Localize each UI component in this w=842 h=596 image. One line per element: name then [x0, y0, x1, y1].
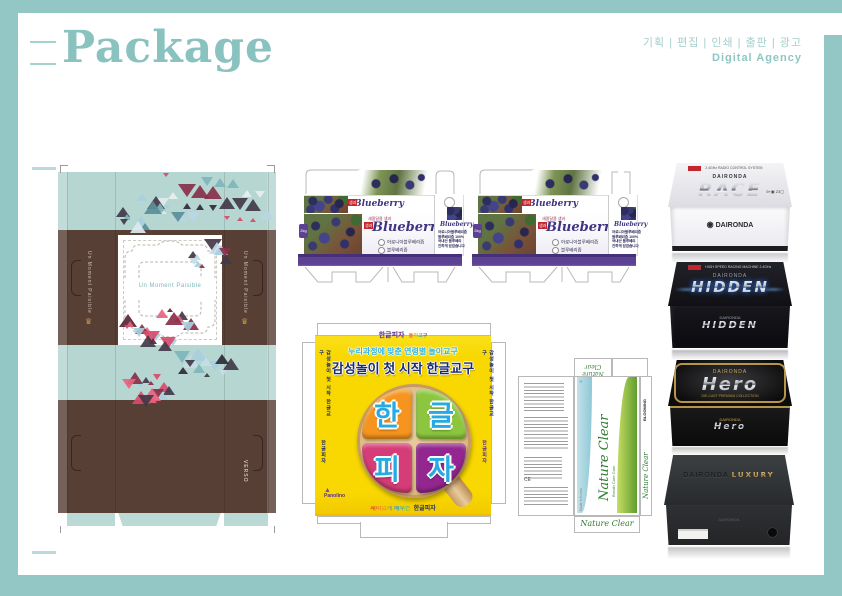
box-note: HIGH SPEED RACING MACHINE 2.4GHz	[705, 265, 784, 269]
box-title: HIDDEN	[691, 279, 769, 296]
ingredients-text-block	[524, 487, 568, 507]
option-1: 아로니아블루베리즙	[378, 239, 424, 246]
shipping-label	[678, 529, 708, 539]
bottom-strip-text: 재미있게 배우는한글피자	[300, 503, 506, 512]
triangle-decoration	[124, 325, 130, 329]
box-marks: 5+▣ 23▢	[766, 189, 784, 194]
brand-line: DAIRONDA LUXURY	[683, 471, 774, 479]
triangle-decoration	[242, 190, 252, 197]
maker-logo: ▲ Panolino	[324, 488, 345, 499]
box-front-face: DAIRONDA HIDDEN	[670, 306, 790, 348]
box-note: 2.4GHz RADIO CONTROL SYSTEM	[705, 166, 784, 170]
frame-right	[824, 35, 842, 596]
box-top-face: DAIRONDA LUXURY	[664, 455, 794, 505]
triangle-decoration	[209, 205, 217, 211]
side-text-right-2: 한글피자	[481, 440, 488, 500]
front-note: DAIRONDA	[666, 517, 792, 522]
blueberry-dieline-1: Blueberry 생과 새콤달콤 생과 생과 Blueberry 아로니아블루…	[298, 166, 462, 296]
crop-mark	[267, 526, 275, 533]
triangle-decoration	[200, 357, 212, 366]
product-box-luxury: DAIRONDA LUXURY DAIRONDA	[664, 455, 794, 560]
sofa-bottom-flap	[67, 513, 115, 526]
blueberry-photo-small	[304, 196, 348, 213]
triangle-decoration	[186, 212, 200, 222]
blueberry-dieline-2: Blueberry 생과 새콤달콤 생과 생과 Blueberry 아로니아블루…	[472, 166, 636, 296]
side-text-right: 감성놀이 첫 시작 한글교구	[481, 350, 495, 420]
fold-line	[115, 172, 116, 513]
box-reflection	[668, 547, 790, 559]
side-panel: Blueberry 아로니아블루베리즙 블루베리즙 100% 국내산 블루베리 …	[434, 195, 463, 254]
weight-badge: 2kg	[299, 224, 308, 238]
triangle-decoration	[178, 367, 188, 374]
blueberry-script-small: Blueberry	[528, 199, 578, 209]
triangle-decoration	[219, 197, 235, 209]
blueberry-photo-small	[478, 196, 522, 213]
triangle-decoration	[168, 192, 178, 199]
sofa-package-dieline: Un Moment Paisible Un Moment Paisible ♛ …	[58, 165, 276, 533]
triangle-decoration	[255, 191, 265, 198]
triangle-decoration	[219, 248, 231, 257]
product-box-hidden: HIGH SPEED RACING MACHINE 2.4GHz DAIROND…	[668, 262, 792, 360]
page-title: Package	[62, 22, 274, 73]
triangle-decoration	[138, 395, 154, 407]
option-circle	[378, 239, 385, 246]
triangle-decoration	[156, 309, 168, 318]
box-top-face: DAIRONDA Hero DIE-CAST PREMIUM COLLECTIO…	[668, 360, 792, 406]
blueberry-script-small: Blueberry	[354, 199, 404, 209]
portfolio-page: Package 기획 | 편집 | 인쇄 | 출판 | 광고 Digital A…	[0, 0, 842, 596]
ingredients-panel: CE	[518, 376, 574, 516]
handle-cutout	[71, 435, 81, 471]
front-name: HIDDEN	[670, 320, 790, 331]
crop-mark	[60, 526, 68, 533]
triangle-decoration	[178, 184, 196, 197]
top-flap-2	[612, 358, 648, 377]
triangle-decoration	[199, 264, 205, 268]
red-tag	[688, 166, 701, 171]
red-tag: 생과	[538, 222, 547, 229]
crown-icon: ♛	[241, 317, 248, 326]
sofa-side-text: Un Moment Paisible	[242, 251, 248, 315]
sofa-tagline: Un Moment Paisible	[118, 283, 222, 289]
fold-line	[67, 172, 68, 513]
agency-text: Digital Agency	[643, 52, 802, 64]
frame-bottom	[0, 575, 842, 596]
triangle-decoration	[153, 374, 161, 380]
ce-mark: CE	[524, 477, 531, 483]
triangle-decoration	[237, 217, 243, 221]
brand-text: BLOOMING	[642, 381, 647, 421]
triangle-decoration	[193, 254, 201, 260]
red-tag: 생과	[348, 199, 357, 206]
title-line-1	[30, 41, 56, 43]
box-front-face: DAIRONDA Hero	[670, 406, 790, 446]
nature-subtitle: Breath Care Gum	[611, 437, 616, 497]
top-brand: 한글피자 놀이교구	[300, 324, 506, 342]
sofa-bottom-flap	[115, 513, 224, 526]
side-berry-photo	[621, 207, 636, 220]
flap-name: Nature Clear	[575, 363, 611, 377]
nature-name-small: Nature Clear	[642, 429, 650, 499]
box-front-face: ◉ DAIRONDA	[670, 207, 790, 251]
nature-main-panel: Nature Clear Breath Care Gum Made in Kor…	[574, 376, 640, 516]
side-script: Blueberry	[614, 221, 647, 228]
triangle-decoration	[204, 373, 210, 377]
crop-mark	[60, 165, 68, 173]
triangle-decoration	[137, 194, 147, 201]
fold-line	[268, 172, 269, 513]
brand-text: DAIRONDA	[683, 472, 728, 479]
product-box-race: 2.4GHz RADIO CONTROL SYSTEM DAIRONDA RAC…	[668, 163, 792, 263]
triangle-decoration	[148, 381, 154, 385]
triangle-decoration	[219, 370, 227, 376]
triangle-decoration	[144, 201, 162, 214]
triangle-decoration	[201, 177, 213, 186]
blueberry-branch-photo	[358, 170, 430, 195]
product-box-hero: DAIRONDA Hero DIE-CAST PREMIUM COLLECTIO…	[668, 360, 792, 455]
nature-clear-dieline: Nature Clear CE Nature Clear Breath Care…	[516, 356, 652, 532]
option-circle	[552, 247, 559, 254]
red-tag	[688, 265, 701, 270]
side-panel: Blueberry 아로니아블루베리즙 블루베리즙 100% 국내산 블루베리 …	[608, 195, 637, 254]
green-wave-band	[617, 377, 637, 513]
red-tag: 생과	[364, 222, 373, 229]
brand-emblem-icon: ◉	[707, 220, 714, 229]
triangle-decoration	[130, 221, 146, 233]
triangle-decoration	[171, 212, 185, 222]
deco-dash-top	[32, 167, 56, 170]
hangul-pizza-dieline: 한글피자 놀이교구 누리과정에 맞춘 연령별 놀이교구 감성놀이 첫 시작 한글…	[300, 320, 506, 542]
box-front-face: DAIRONDA	[666, 505, 792, 545]
option-2: 블루베리즙	[552, 247, 582, 254]
header-right: 기획 | 편집 | 인쇄 | 출판 | 광고 Digital Agency	[643, 34, 802, 64]
side-label: Made in Korea	[579, 477, 583, 511]
side-text-left: 감성놀이 첫 시작 한글교구	[318, 350, 332, 420]
triangle-decoration	[163, 173, 169, 177]
maker-logo-text: Panolino	[324, 493, 345, 499]
bottom-flap-outline	[298, 266, 462, 296]
bottom-name: Nature Clear	[575, 519, 639, 528]
triangle-decoration	[120, 219, 128, 225]
box-reflection	[672, 447, 788, 455]
triangle-decoration	[183, 203, 191, 209]
triangle-decoration	[214, 178, 226, 187]
sofa-side-text: Un Moment Paisible	[86, 251, 92, 315]
handle-cutout	[71, 260, 81, 296]
handle-cutout	[253, 260, 263, 296]
box-title: LUXURY	[732, 471, 775, 479]
headline-1: 누리과정에 맞춘 연령별 놀이교구	[330, 346, 476, 357]
handle-cutout	[253, 435, 263, 471]
frame-top	[0, 0, 842, 13]
ingredients-text-block	[524, 417, 568, 451]
services-text: 기획 | 편집 | 인쇄 | 출판 | 광고	[643, 34, 802, 50]
front-brand: ◉ DAIRONDA	[670, 220, 790, 229]
triangle-decoration	[227, 179, 239, 188]
box-top-face: HIGH SPEED RACING MACHINE 2.4GHz DAIROND…	[668, 262, 792, 306]
blueberry-photo-large	[304, 214, 362, 254]
side-berry-photo	[447, 207, 462, 220]
box-top-face: 2.4GHz RADIO CONTROL SYSTEM DAIRONDA RAC…	[668, 163, 792, 207]
sofa-bottom-flap	[224, 513, 268, 526]
triangle-decoration	[250, 218, 256, 222]
crown-icon: ♛	[85, 317, 92, 326]
option-2: 블루베리즙	[378, 247, 408, 254]
nature-name: Nature Clear	[597, 391, 612, 501]
box-reflection	[672, 350, 788, 360]
purple-band	[298, 254, 462, 266]
frame-left	[0, 0, 18, 596]
blueberry-photo-large	[478, 214, 536, 254]
side-script: Blueberry	[440, 221, 473, 228]
sofa-outer-flap-left	[58, 172, 67, 513]
purple-band	[472, 254, 636, 266]
triangle-decoration	[122, 379, 136, 389]
triangle-decoration	[181, 322, 195, 332]
bottom-tuck-flap	[360, 522, 448, 538]
front-name: Hero	[670, 422, 790, 432]
round-badge	[767, 527, 778, 538]
triangle-decoration	[260, 210, 274, 220]
blueberry-branch-photo	[532, 170, 604, 195]
triangle-decoration	[215, 354, 229, 364]
nature-side-panel: BLOOMING Nature Clear	[640, 376, 652, 516]
side-text-block: 아로니아블루베리즙 블루베리즙 100% 국내산 블루베리 진하게 담았습니다	[438, 230, 467, 248]
deco-dash-bottom	[32, 551, 56, 554]
title-line-2	[30, 63, 56, 65]
gold-border	[674, 363, 786, 403]
ingredients-text-block	[524, 383, 564, 411]
triangle-decoration	[224, 216, 230, 220]
red-tag: 생과	[522, 199, 531, 206]
recycle-icon: ♻	[579, 379, 583, 384]
weight-badge: 2kg	[473, 224, 482, 238]
option-circle	[552, 239, 559, 246]
triangle-decoration	[185, 360, 195, 367]
side-text-block: 아로니아블루베리즙 블루베리즙 100% 국내산 블루베리 진하게 담았습니다	[612, 230, 641, 248]
option-circle	[378, 247, 385, 254]
headline-2: 감성놀이 첫 시작 한글교구	[320, 358, 486, 377]
sofa-brand: VERSO	[242, 460, 248, 500]
fold-line	[224, 172, 225, 513]
crop-mark	[267, 165, 275, 173]
top-flap-1: Nature Clear	[574, 358, 612, 377]
bottom-flap: Nature Clear	[574, 516, 640, 533]
triangle-decoration	[140, 335, 156, 347]
option-1: 아로니아블루베리즙	[552, 239, 598, 246]
box-title: RACE	[698, 180, 762, 200]
triangle-decoration	[158, 341, 172, 351]
bottom-flap-outline	[472, 266, 636, 296]
triangle-decoration	[196, 204, 204, 210]
